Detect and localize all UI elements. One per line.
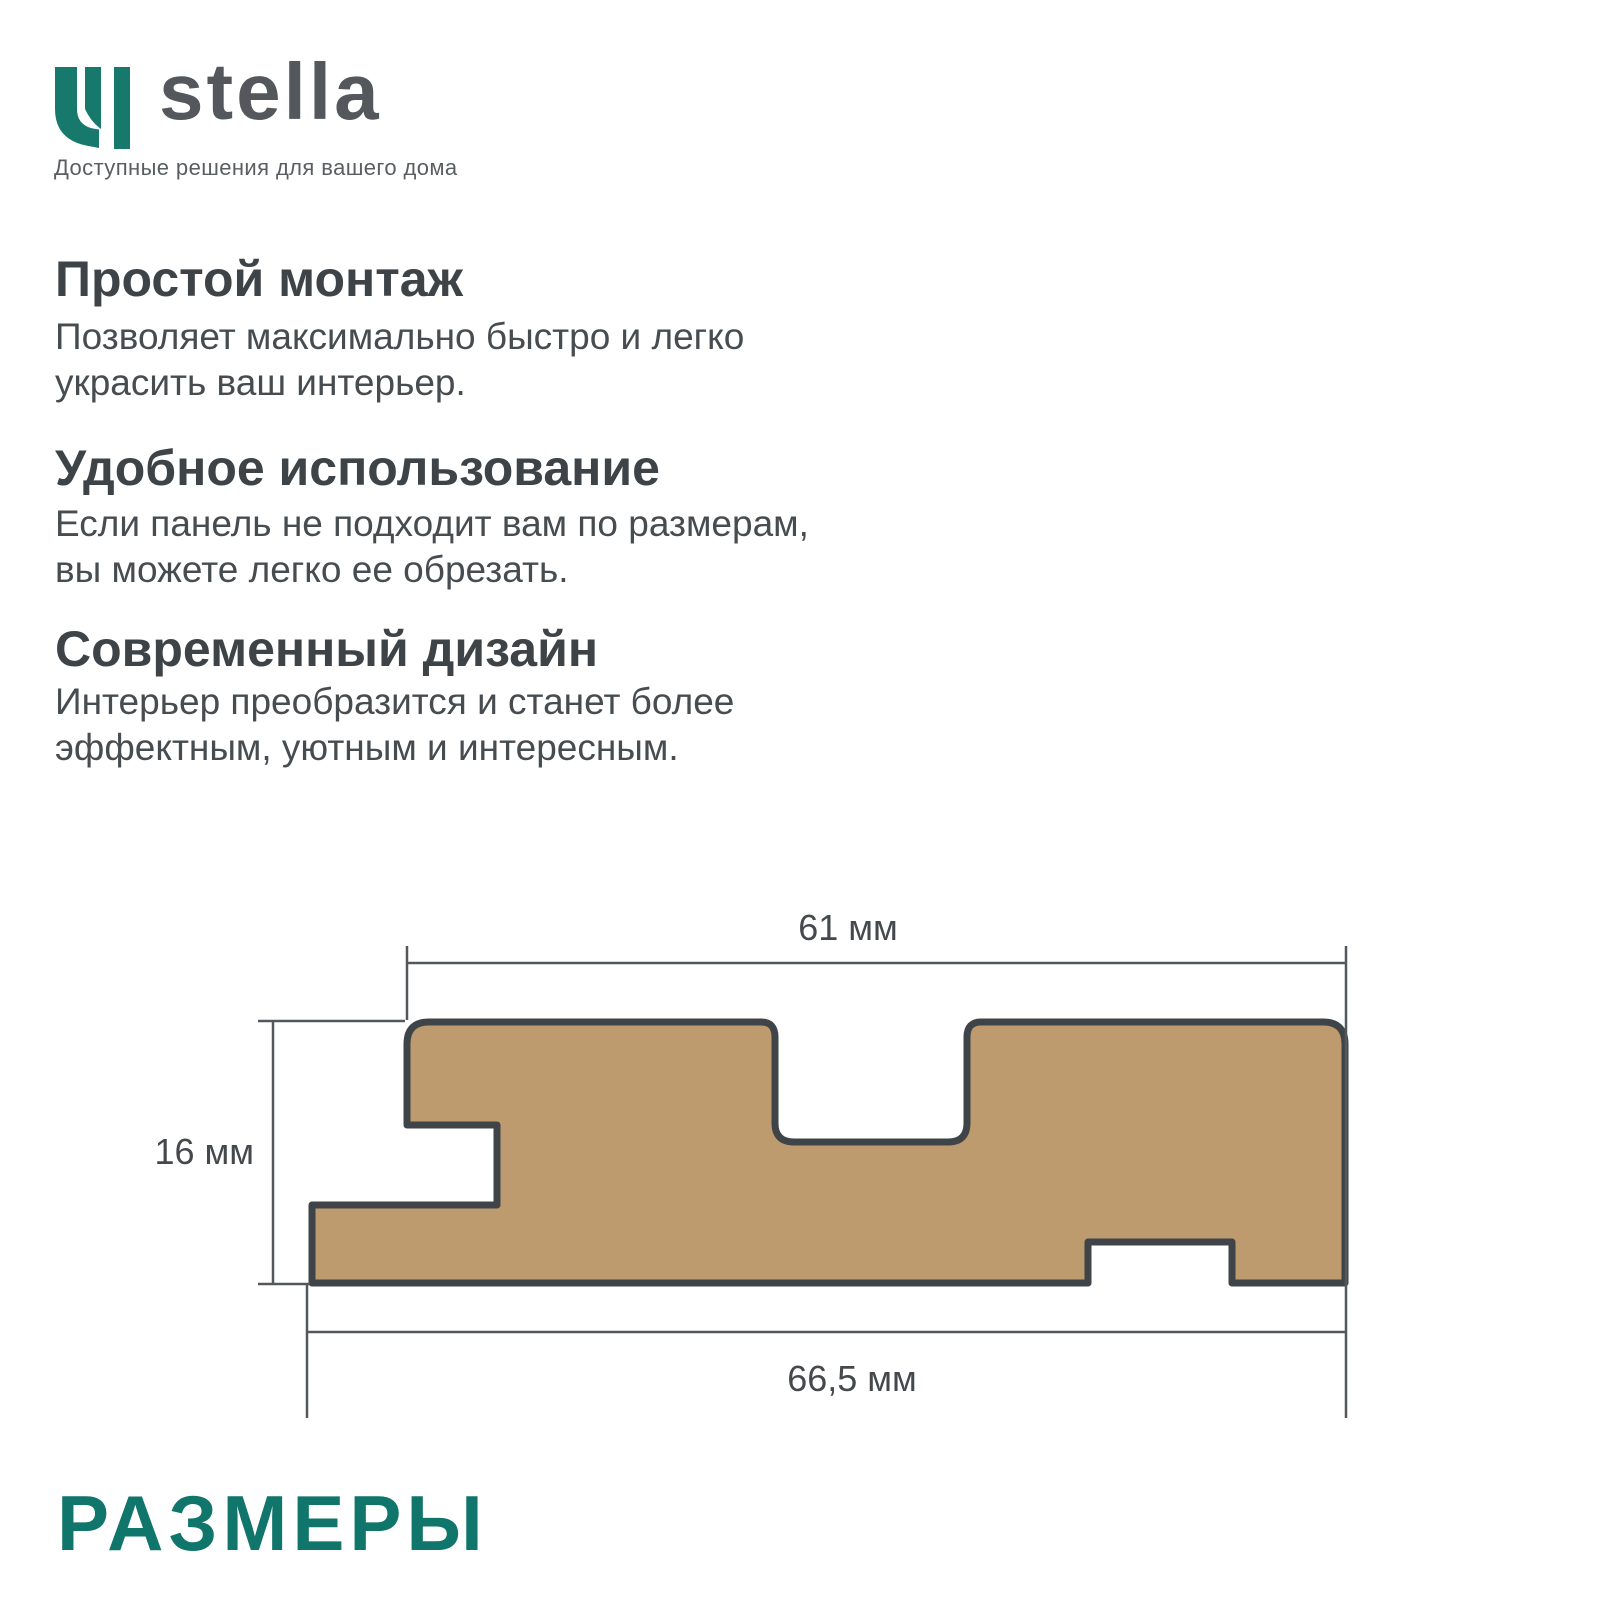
feature-body-convenient-use: Если панель не подходит вам по размерам,…: [55, 501, 809, 593]
feature-title-modern-design: Современный дизайн: [55, 620, 598, 678]
dim-label-top-width: 61 мм: [798, 907, 898, 948]
feature-body-modern-design: Интерьер преобразится и станет более эфф…: [55, 679, 734, 771]
product-infographic: stella Доступные решения для вашего дома…: [0, 0, 1620, 1620]
dim-label-height: 16 мм: [154, 1131, 254, 1172]
stella-logo: stella Доступные решения для вашего дома: [55, 64, 695, 184]
feature-title-easy-install: Простой монтаж: [55, 250, 463, 308]
panel-profile-shape: [312, 1022, 1345, 1283]
section-title-sizes: РАЗМЕРЫ: [57, 1478, 488, 1569]
panel-cross-section-diagram: 61 мм 16 мм 66,5 мм: [140, 870, 1430, 1440]
feature-body-easy-install: Позволяет максимально быстро и легко укр…: [55, 314, 744, 406]
stella-logo-icon: [55, 67, 131, 149]
dim-label-bottom-width: 66,5 мм: [787, 1358, 917, 1399]
brand-wordmark: stella: [159, 47, 382, 137]
brand-tagline: Доступные решения для вашего дома: [54, 155, 458, 181]
feature-title-convenient-use: Удобное использование: [55, 439, 660, 497]
